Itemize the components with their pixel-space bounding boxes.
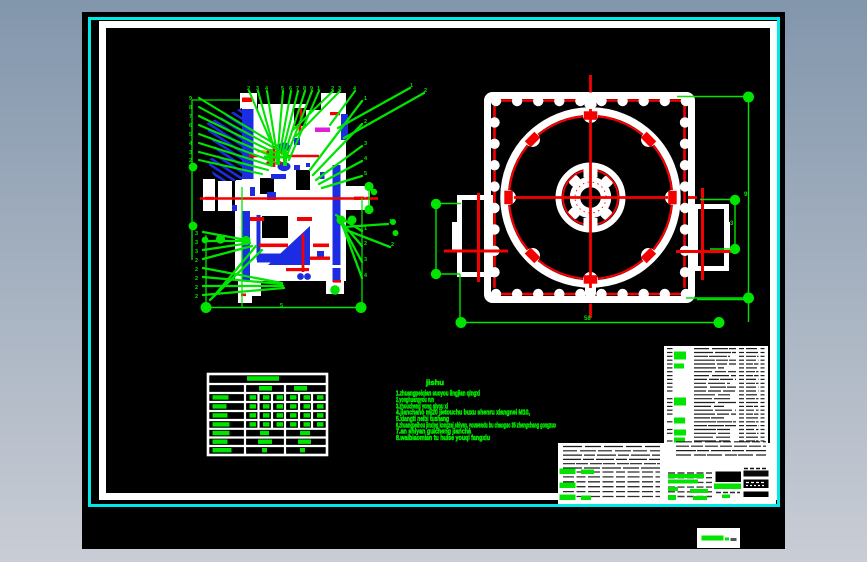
svg-text:1: 1	[389, 219, 392, 225]
svg-text:2: 2	[195, 267, 198, 273]
svg-text:2: 2	[195, 294, 198, 300]
svg-text:6: 6	[289, 86, 292, 92]
svg-text:2: 2	[331, 86, 334, 92]
svg-text:2: 2	[195, 276, 198, 282]
svg-text:3: 3	[256, 86, 259, 92]
svg-text:5: 5	[281, 86, 284, 92]
svg-text:6: 6	[189, 123, 192, 129]
svg-text:1: 1	[317, 86, 320, 92]
svg-text:1: 1	[410, 83, 413, 89]
svg-text:8: 8	[189, 105, 192, 111]
svg-text:2: 2	[189, 158, 192, 164]
svg-text:1: 1	[364, 96, 367, 102]
svg-text:2: 2	[391, 242, 394, 248]
svg-text:8.waibiaomian tu huise youqi f: 8.waibiaomian tu huise youqi fangxiu	[396, 435, 490, 442]
svg-text:2: 2	[195, 258, 198, 264]
svg-text:2: 2	[195, 285, 198, 291]
svg-text:3: 3	[195, 240, 198, 246]
svg-text:9: 9	[189, 96, 192, 102]
svg-text:2: 2	[247, 86, 250, 92]
svg-text:8: 8	[303, 86, 306, 92]
svg-text:2: 2	[364, 119, 367, 125]
svg-text:5: 5	[280, 303, 283, 309]
svg-text:7: 7	[189, 114, 192, 120]
svg-text:3: 3	[189, 150, 192, 156]
svg-text:1: 1	[364, 226, 367, 232]
svg-text:3: 3	[338, 86, 341, 92]
svg-text:2: 2	[364, 241, 367, 247]
svg-text:5: 5	[364, 171, 367, 177]
svg-text:58: 58	[584, 316, 591, 322]
svg-text:3: 3	[364, 257, 367, 263]
svg-text:3: 3	[195, 231, 198, 237]
svg-text:9: 9	[310, 86, 313, 92]
svg-text:jishu: jishu	[425, 380, 444, 387]
svg-text:5: 5	[189, 132, 192, 138]
svg-text:2: 2	[424, 88, 427, 94]
svg-text:7: 7	[296, 86, 299, 92]
svg-text:3: 3	[364, 141, 367, 147]
svg-text:3: 3	[195, 249, 198, 255]
